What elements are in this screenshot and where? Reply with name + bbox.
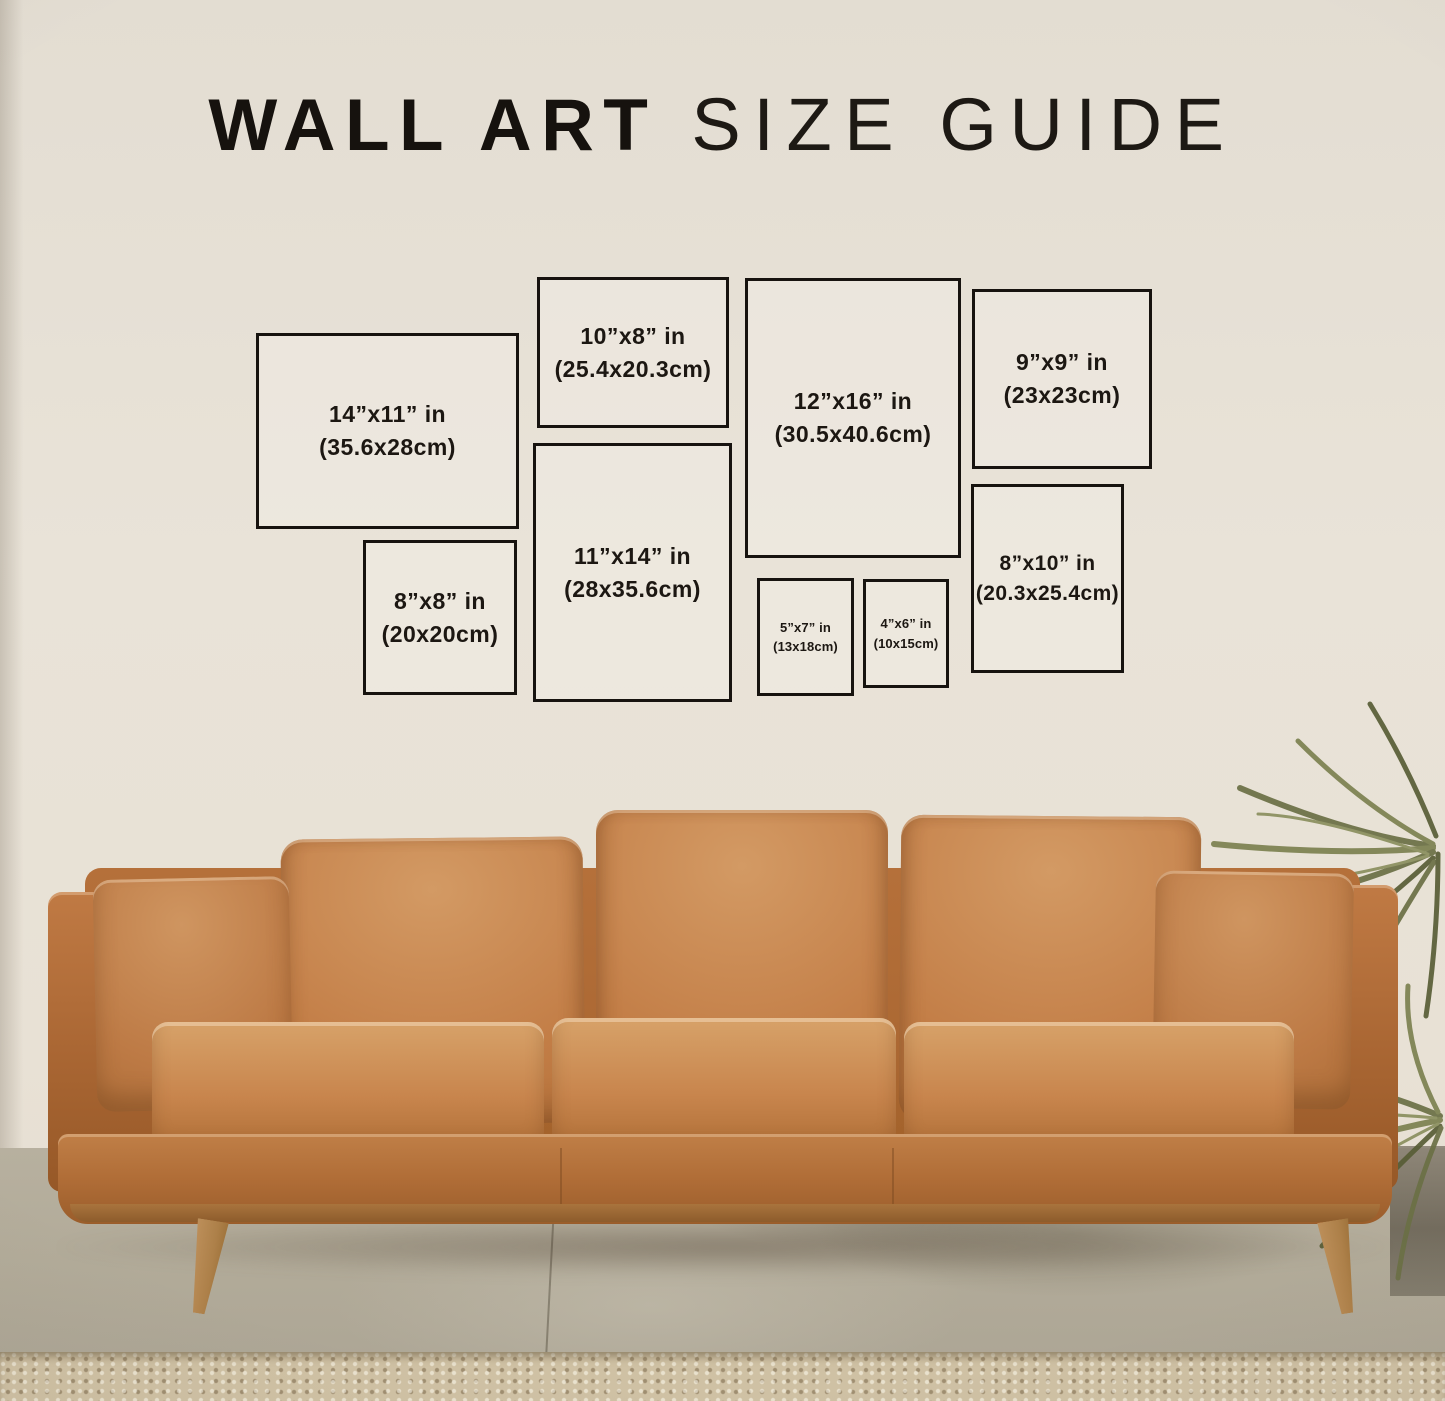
frame-size-inches: 8”x8” in bbox=[394, 585, 486, 618]
woven-rug bbox=[0, 1352, 1445, 1401]
frame-size-inches: 10”x8” in bbox=[580, 320, 685, 353]
frame-box-9x9: 9”x9” in (23x23cm) bbox=[972, 289, 1152, 469]
wall-art-size-guide-image: WALL ART SIZE GUIDE 14”x11” in (35.6x28c… bbox=[0, 0, 1445, 1401]
title-secondary: SIZE GUIDE bbox=[691, 82, 1236, 167]
page-title: WALL ART SIZE GUIDE bbox=[0, 82, 1445, 167]
frame-size-cm: (10x15cm) bbox=[874, 634, 939, 654]
sofa-base-seam-left bbox=[560, 1148, 562, 1210]
frame-size-cm: (20x20cm) bbox=[382, 618, 499, 651]
frame-size-cm: (35.6x28cm) bbox=[319, 431, 456, 464]
frame-size-inches: 4”x6” in bbox=[881, 614, 932, 634]
frame-box-12x16: 12”x16” in (30.5x40.6cm) bbox=[745, 278, 961, 558]
sofa-leg-right bbox=[1307, 1217, 1373, 1318]
frame-size-cm: (25.4x20.3cm) bbox=[555, 353, 712, 386]
frame-box-11x14: 11”x14” in (28x35.6cm) bbox=[533, 443, 732, 702]
frame-size-inches: 9”x9” in bbox=[1016, 346, 1108, 379]
frame-box-8x8: 8”x8” in (20x20cm) bbox=[363, 540, 517, 695]
frame-size-inches: 12”x16” in bbox=[794, 385, 912, 418]
title-primary: WALL ART bbox=[208, 84, 657, 167]
frame-size-inches: 14”x11” in bbox=[329, 398, 446, 431]
frame-box-8x10: 8”x10” in (20.3x25.4cm) bbox=[971, 484, 1124, 673]
frame-box-4x6: 4”x6” in (10x15cm) bbox=[863, 579, 949, 688]
leather-sofa bbox=[0, 780, 1445, 1340]
frame-size-inches: 8”x10” in bbox=[1000, 549, 1096, 579]
frame-size-cm: (23x23cm) bbox=[1004, 379, 1121, 412]
sofa-base-wood-trim bbox=[70, 1204, 1380, 1222]
frame-size-inches: 5”x7” in bbox=[780, 618, 831, 638]
frame-box-5x7: 5”x7” in (13x18cm) bbox=[757, 578, 854, 696]
frame-size-cm: (20.3x25.4cm) bbox=[976, 579, 1119, 609]
frame-box-10x8: 10”x8” in (25.4x20.3cm) bbox=[537, 277, 729, 428]
sofa-floor-shadow bbox=[55, 1218, 1395, 1276]
frame-size-inches: 11”x14” in bbox=[574, 540, 691, 573]
frame-size-cm: (28x35.6cm) bbox=[564, 573, 701, 606]
sofa-base-seam-right bbox=[892, 1148, 894, 1210]
frame-box-14x11: 14”x11” in (35.6x28cm) bbox=[256, 333, 519, 529]
frame-size-cm: (13x18cm) bbox=[773, 637, 838, 657]
frame-size-cm: (30.5x40.6cm) bbox=[775, 418, 932, 451]
